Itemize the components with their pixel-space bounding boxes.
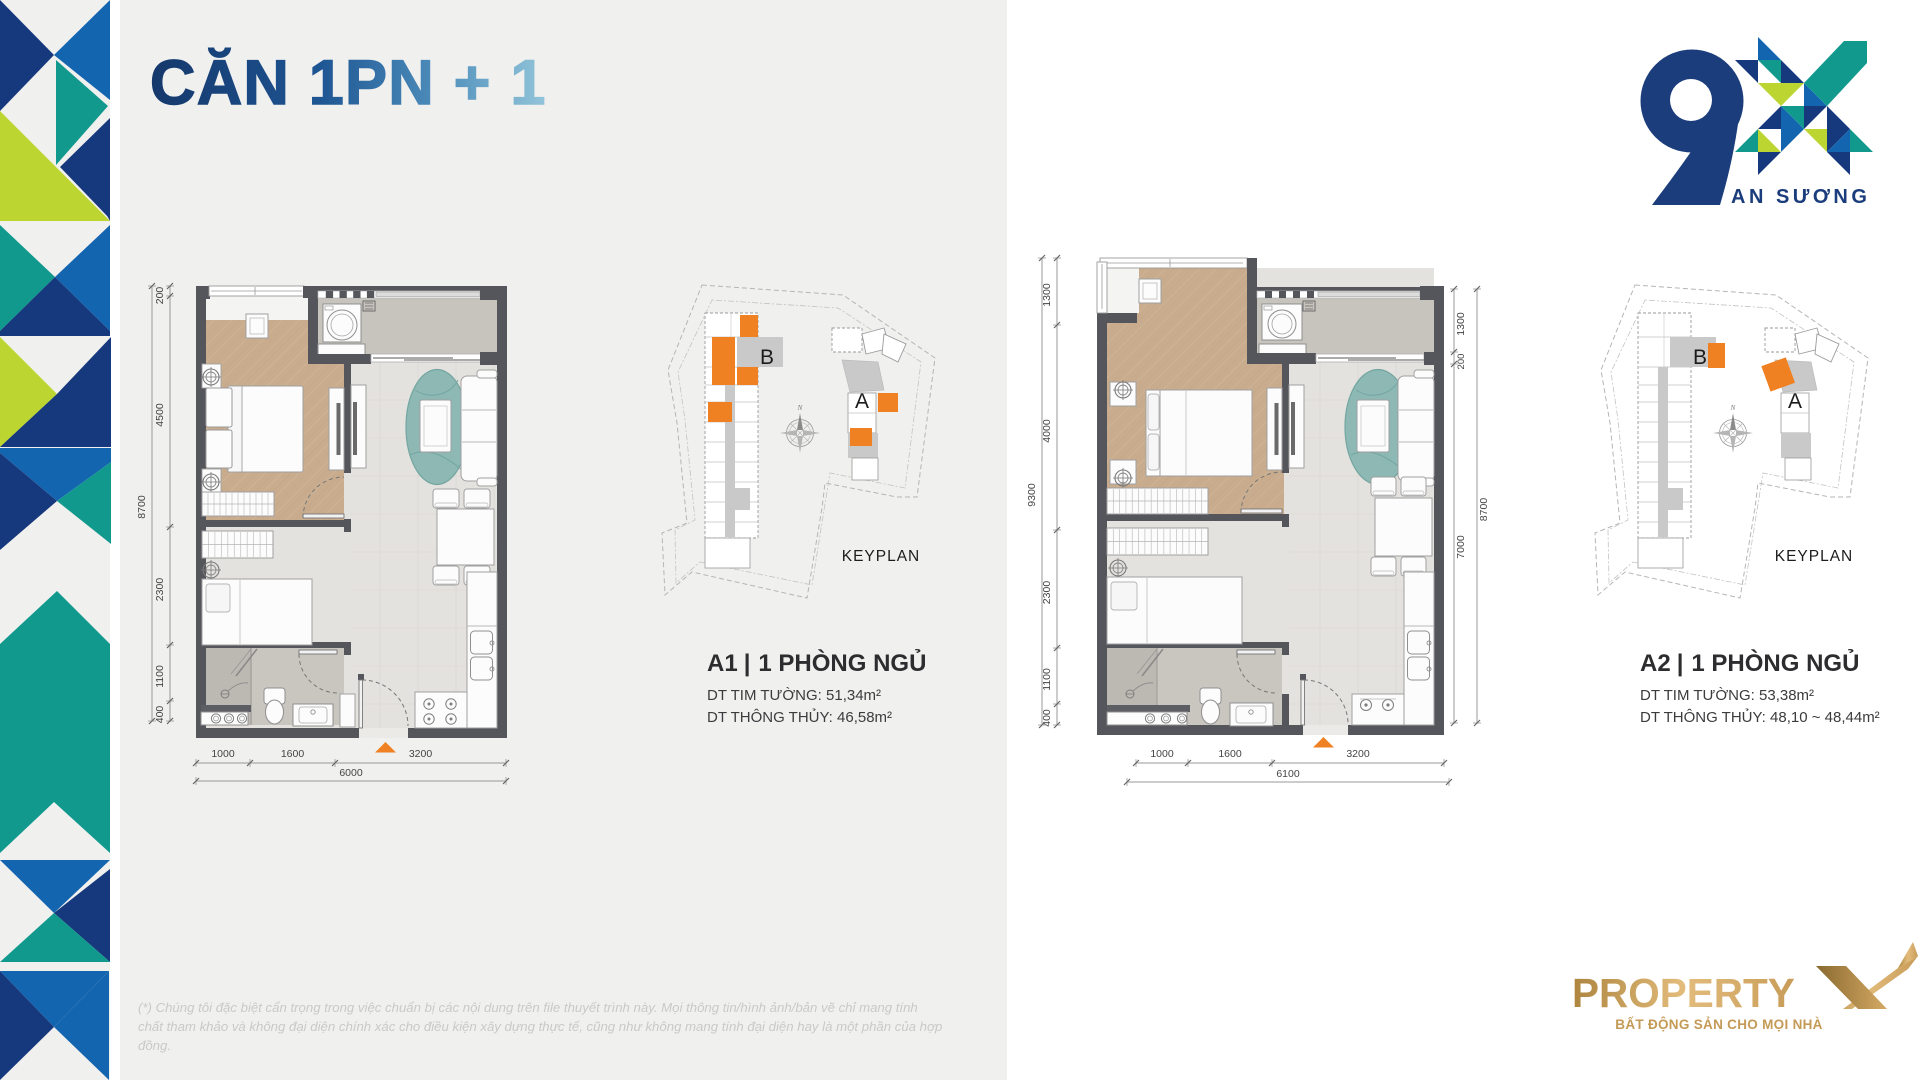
svg-text:4500: 4500 (154, 403, 166, 427)
svg-text:BẤT ĐỘNG SẢN CHO MỌI NHÀ: BẤT ĐỘNG SẢN CHO MỌI NHÀ (1615, 1017, 1822, 1032)
svg-text:1300: 1300 (1041, 283, 1053, 307)
svg-text:1300: 1300 (1455, 312, 1467, 336)
svg-text:B: B (760, 346, 774, 369)
svg-text:1600: 1600 (1218, 748, 1242, 760)
svg-text:A: A (855, 390, 869, 413)
svg-text:1100: 1100 (1041, 668, 1053, 691)
svg-text:DT TIM TƯỜNG: 53,38m²: DT TIM TƯỜNG: 53,38m² (1640, 687, 1814, 704)
svg-text:3200: 3200 (409, 748, 433, 760)
svg-text:7000: 7000 (1455, 535, 1467, 559)
svg-text:1600: 1600 (281, 748, 305, 760)
svg-text:CĂN 1PN + 1: CĂN 1PN + 1 (150, 48, 547, 118)
svg-text:4000: 4000 (1041, 419, 1053, 443)
svg-text:B: B (1693, 346, 1707, 369)
svg-text:(*) Chúng tôi đặc biệt cẩn trọ: (*) Chúng tôi đặc biệt cẩn trọng trong v… (138, 1000, 918, 1015)
svg-text:KEYPLAN: KEYPLAN (842, 548, 921, 565)
svg-text:đồng.: đồng. (138, 1038, 171, 1053)
svg-text:A2|1 PHÒNG NGỦ: A2|1 PHÒNG NGỦ (1640, 648, 1859, 677)
svg-text:1100: 1100 (154, 665, 166, 688)
svg-text:9300: 9300 (1026, 483, 1038, 507)
svg-text:A1|1 PHÒNG NGỦ: A1|1 PHÒNG NGỦ (707, 648, 926, 677)
svg-text:8700: 8700 (136, 495, 148, 519)
svg-text:KEYPLAN: KEYPLAN (1775, 548, 1854, 565)
svg-text:2300: 2300 (1041, 581, 1053, 605)
svg-text:1000: 1000 (1150, 748, 1174, 760)
svg-text:N: N (1730, 404, 1736, 412)
svg-text:PROPERTY: PROPERTY (1572, 970, 1795, 1016)
svg-text:200: 200 (154, 287, 166, 305)
svg-text:AN SƯƠNG: AN SƯƠNG (1731, 186, 1870, 208)
svg-text:DT TIM TƯỜNG: 51,34m²: DT TIM TƯỜNG: 51,34m² (707, 687, 881, 704)
svg-text:DT THÔNG THỦY: 46,58m²: DT THÔNG THỦY: 46,58m² (707, 708, 892, 726)
svg-text:A: A (1788, 390, 1802, 413)
svg-text:1000: 1000 (211, 748, 235, 760)
svg-text:8700: 8700 (1478, 498, 1490, 522)
svg-text:chất tham khảo và không đại di: chất tham khảo và không đại diện chính x… (138, 1019, 942, 1034)
svg-text:N: N (797, 404, 803, 412)
svg-text:3200: 3200 (1346, 748, 1370, 760)
svg-text:6000: 6000 (339, 767, 363, 779)
svg-text:200: 200 (1456, 354, 1467, 370)
svg-text:2300: 2300 (154, 578, 166, 602)
svg-text:DT THÔNG THỦY: 48,10 ~ 48,44m²: DT THÔNG THỦY: 48,10 ~ 48,44m² (1640, 708, 1880, 726)
svg-text:6100: 6100 (1276, 768, 1300, 780)
